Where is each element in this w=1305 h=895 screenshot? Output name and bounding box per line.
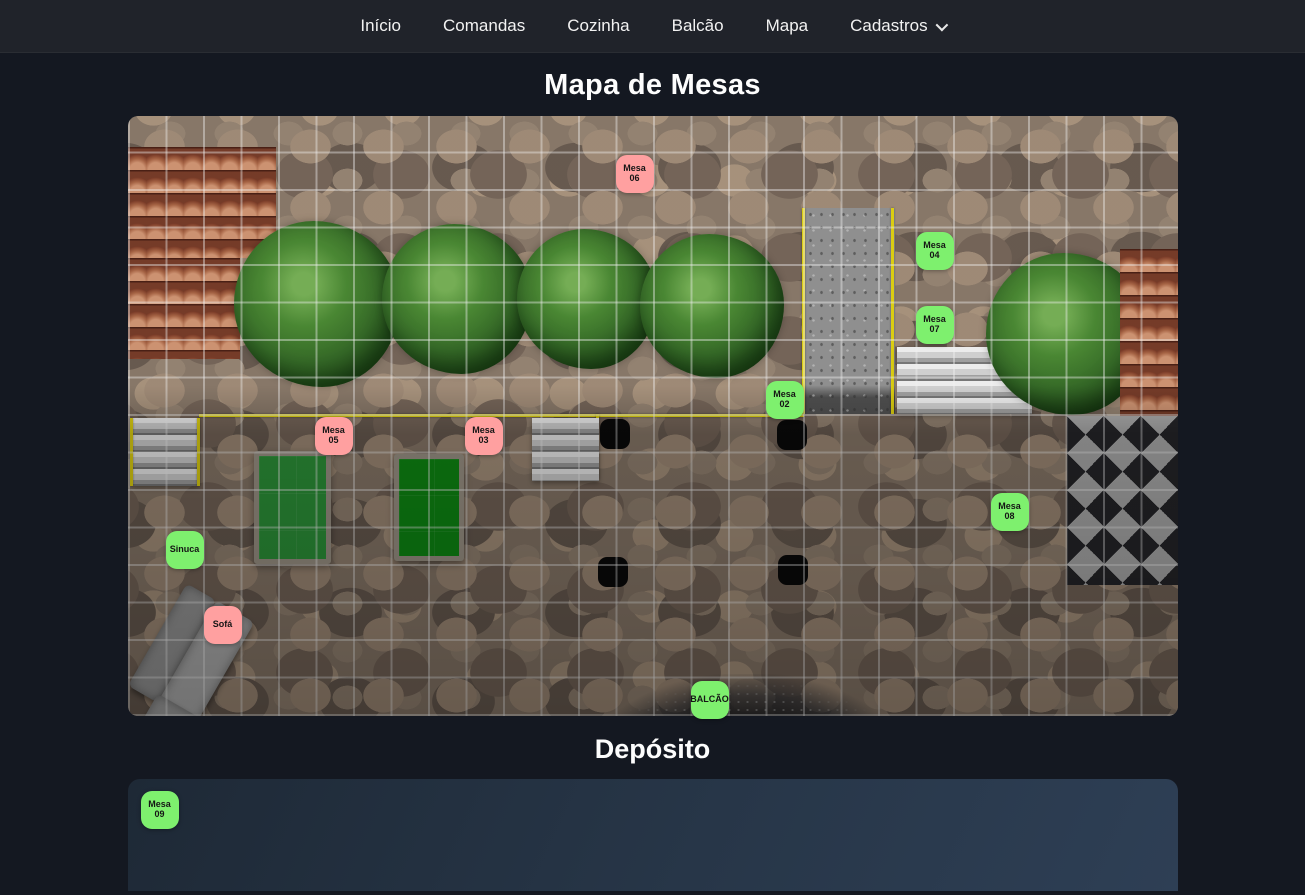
map-scene	[128, 116, 1178, 716]
page-title: Mapa de Mesas	[0, 69, 1305, 102]
sofa	[128, 577, 286, 716]
checkered-floor	[1067, 416, 1178, 585]
table-marker-mesa-06[interactable]: Mesa 06	[616, 155, 654, 193]
fence-line-horizontal	[199, 414, 804, 417]
black-table	[600, 419, 630, 449]
nav-item-cozinha[interactable]: Cozinha	[553, 8, 643, 44]
nav-item-label: Início	[360, 16, 401, 36]
chevron-down-icon	[935, 18, 948, 31]
tree	[382, 224, 532, 374]
table-marker-mesa-08[interactable]: Mesa 08	[991, 493, 1029, 531]
stairs-middle	[532, 418, 599, 481]
table-marker-mesa-07[interactable]: Mesa 07	[916, 306, 954, 344]
nav-item-balcao[interactable]: Balcão	[658, 8, 738, 44]
nav-item-label: Mapa	[766, 16, 809, 36]
counter-speckle	[572, 674, 922, 716]
roof-top-left-lower	[128, 258, 240, 359]
pool-table	[254, 451, 331, 564]
table-marker-mesa-04[interactable]: Mesa 04	[916, 232, 954, 270]
tree	[234, 221, 400, 387]
deposit-title: Depósito	[0, 734, 1305, 765]
black-table	[778, 555, 808, 585]
black-table	[598, 557, 628, 587]
roof-top-left	[128, 147, 276, 258]
table-map: Mesa 06Mesa 04Mesa 07Mesa 02Mesa 05Mesa …	[128, 116, 1178, 716]
tree	[640, 234, 784, 378]
path-yellow-line-right	[891, 208, 894, 414]
stairs-left-rail	[197, 418, 200, 486]
nav-item-inicio[interactable]: Início	[346, 8, 415, 44]
stairs-left	[132, 418, 198, 486]
stairs-left-rail	[130, 418, 133, 486]
path-yellow-line-left	[802, 208, 805, 414]
table-marker-mesa-05[interactable]: Mesa 05	[315, 417, 353, 455]
top-navbar: InícioComandasCozinhaBalcãoMapaCadastros	[0, 0, 1305, 53]
pool-table	[394, 454, 464, 561]
table-marker-mesa-09[interactable]: Mesa 09	[141, 791, 179, 829]
nav-item-cadastros[interactable]: Cadastros	[836, 8, 958, 44]
nav-item-mapa[interactable]: Mapa	[752, 8, 823, 44]
black-table	[777, 420, 807, 450]
table-marker-balcao[interactable]: BALCÃO	[691, 681, 729, 719]
nav-item-comandas[interactable]: Comandas	[429, 8, 539, 44]
nav-item-label: Balcão	[672, 16, 724, 36]
nav-item-label: Cozinha	[567, 16, 629, 36]
nav-item-label: Cadastros	[850, 16, 927, 36]
table-marker-sinuca[interactable]: Sinuca	[166, 531, 204, 569]
table-marker-mesa-03[interactable]: Mesa 03	[465, 417, 503, 455]
nav-item-label: Comandas	[443, 16, 525, 36]
table-marker-mesa-02[interactable]: Mesa 02	[766, 381, 804, 419]
tree	[517, 229, 657, 369]
concrete-path	[805, 208, 895, 414]
roof-right	[1120, 249, 1178, 417]
table-marker-sofa[interactable]: Sofá	[204, 606, 242, 644]
deposit-panel: Mesa 09	[128, 779, 1178, 891]
